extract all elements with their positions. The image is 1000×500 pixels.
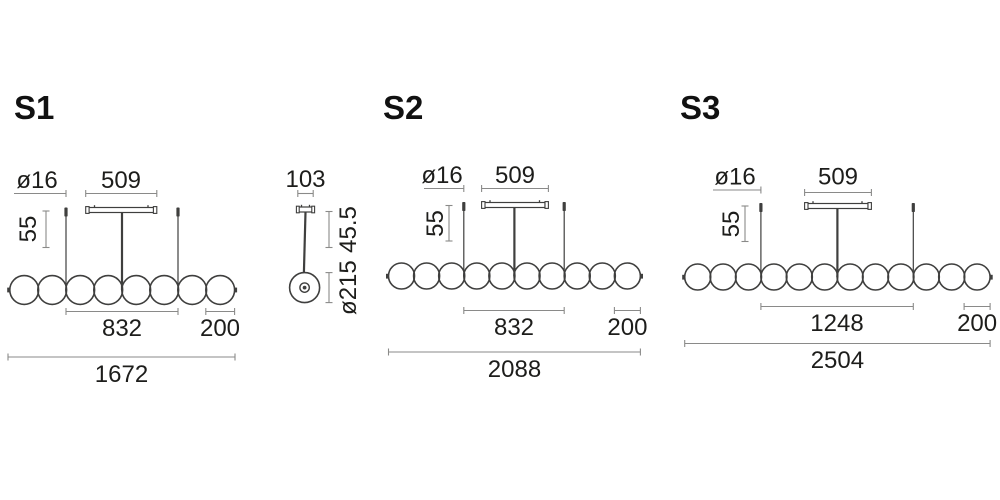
sphere bbox=[539, 263, 565, 289]
side-sphere bbox=[290, 273, 320, 303]
s1-cable-diameter-label: ø16 bbox=[16, 167, 57, 194]
s2-cable-diameter-label: ø16 bbox=[421, 162, 462, 189]
side-top-height-label: 45.5 bbox=[335, 206, 362, 253]
s1-dim-cable-diameter: ø16 bbox=[14, 167, 66, 197]
s3-dim-top-offset: 55 bbox=[718, 206, 749, 242]
sphere bbox=[439, 263, 465, 289]
sphere bbox=[863, 264, 889, 290]
sphere bbox=[685, 264, 711, 290]
side-dim-top-height: 45.5 bbox=[326, 206, 363, 253]
sphere bbox=[786, 264, 812, 290]
s3-sphere-diameter-label: 200 bbox=[957, 310, 997, 337]
s1-dim-top-offset: 55 bbox=[15, 211, 50, 248]
sphere bbox=[837, 264, 863, 290]
sphere bbox=[939, 264, 965, 290]
side-canopy-width-label: 103 bbox=[285, 166, 325, 193]
side-dim-sphere-diameter: ø215 bbox=[326, 260, 363, 315]
s3-right-endcap bbox=[990, 275, 993, 280]
s3-left-endcap bbox=[682, 275, 685, 280]
s1-canopy-length-label: 509 bbox=[101, 167, 141, 194]
diagram-s3: S3 ø16 509 bbox=[680, 89, 997, 374]
s3-dim-sphere-diameter: 200 bbox=[957, 303, 997, 337]
sphere bbox=[514, 263, 540, 289]
sphere bbox=[736, 264, 762, 290]
spec-sheet: S1 ø16 50 bbox=[0, 0, 1000, 500]
sphere bbox=[614, 263, 640, 289]
sphere bbox=[389, 263, 415, 289]
s2-dim-cable-diameter: ø16 bbox=[421, 162, 463, 192]
sphere bbox=[589, 263, 615, 289]
s3-suspension-span-label: 1248 bbox=[810, 310, 863, 337]
s2-suspension-span-label: 832 bbox=[494, 314, 534, 341]
sphere bbox=[888, 264, 914, 290]
s2-sphere-diameter-label: 200 bbox=[607, 314, 647, 341]
side-canopy bbox=[296, 205, 314, 213]
sphere bbox=[178, 276, 207, 305]
s2-dim-total-length: 2088 bbox=[389, 349, 641, 384]
s3-dim-canopy-length: 509 bbox=[805, 164, 872, 197]
sphere bbox=[94, 276, 123, 305]
s2-canopy-length-label: 509 bbox=[495, 162, 535, 189]
s1-dim-canopy-length: 509 bbox=[86, 167, 157, 197]
sphere bbox=[564, 263, 590, 289]
diagram-side-view: 103 45.5 ø215 bbox=[285, 166, 362, 315]
sphere bbox=[812, 264, 838, 290]
sphere bbox=[150, 276, 179, 305]
sphere bbox=[414, 263, 440, 289]
s3-dim-suspension-span: 1248 bbox=[761, 303, 913, 337]
s3-dim-total-length: 2504 bbox=[685, 340, 990, 374]
sphere bbox=[710, 264, 736, 290]
s2-dim-sphere-diameter: 200 bbox=[607, 307, 647, 341]
s3-suspension-wires bbox=[759, 203, 915, 277]
s3-canopy bbox=[805, 201, 872, 209]
s2-top-offset-label: 55 bbox=[422, 210, 449, 237]
side-stem bbox=[304, 212, 306, 273]
sphere bbox=[66, 276, 95, 305]
sphere bbox=[964, 264, 990, 290]
s1-canopy bbox=[86, 205, 157, 213]
sphere bbox=[122, 276, 151, 305]
s1-sphere-diameter-label: 200 bbox=[200, 315, 240, 342]
variant-s3-title: S3 bbox=[680, 89, 720, 126]
s2-dim-top-offset: 55 bbox=[422, 206, 453, 242]
s1-left-endcap bbox=[7, 288, 10, 293]
variant-s2-title: S2 bbox=[383, 89, 423, 126]
side-sphere-diameter-label: ø215 bbox=[335, 260, 362, 315]
s2-dim-suspension-span: 832 bbox=[464, 307, 564, 341]
s3-cable-diameter-label: ø16 bbox=[714, 164, 755, 191]
diagram-s2: S2 ø16 509 bbox=[383, 89, 647, 383]
sphere bbox=[913, 264, 939, 290]
s3-canopy-length-label: 509 bbox=[818, 164, 858, 191]
s3-top-offset-label: 55 bbox=[718, 211, 745, 238]
sphere bbox=[489, 263, 515, 289]
s2-canopy bbox=[482, 200, 549, 208]
s2-total-length-label: 2088 bbox=[488, 356, 541, 383]
diagram-s1: S1 ø16 50 bbox=[7, 89, 240, 388]
side-dim-canopy-width: 103 bbox=[285, 166, 325, 197]
s2-suspension-wires bbox=[462, 202, 566, 276]
variant-s1-title: S1 bbox=[14, 89, 54, 126]
sphere bbox=[464, 263, 490, 289]
s1-top-offset-label: 55 bbox=[15, 216, 42, 243]
s1-suspension-span-label: 832 bbox=[102, 315, 142, 342]
s1-dim-total-length: 1672 bbox=[8, 354, 235, 389]
sphere bbox=[206, 276, 235, 305]
s2-right-endcap bbox=[641, 274, 644, 279]
s2-left-endcap bbox=[386, 274, 389, 279]
sphere bbox=[38, 276, 67, 305]
s2-dim-canopy-length: 509 bbox=[482, 162, 549, 192]
sphere bbox=[761, 264, 787, 290]
s1-dim-sphere-diameter: 200 bbox=[200, 308, 240, 342]
sphere bbox=[10, 276, 39, 305]
s1-dim-suspension-span: 832 bbox=[66, 308, 178, 342]
s3-total-length-label: 2504 bbox=[811, 347, 864, 374]
s3-dim-cable-diameter: ø16 bbox=[713, 164, 761, 194]
s1-right-endcap bbox=[235, 288, 238, 293]
s1-suspension-wires bbox=[64, 208, 179, 291]
s1-total-length-label: 1672 bbox=[95, 361, 148, 388]
dimension-drawing: S1 ø16 50 bbox=[0, 0, 1000, 500]
